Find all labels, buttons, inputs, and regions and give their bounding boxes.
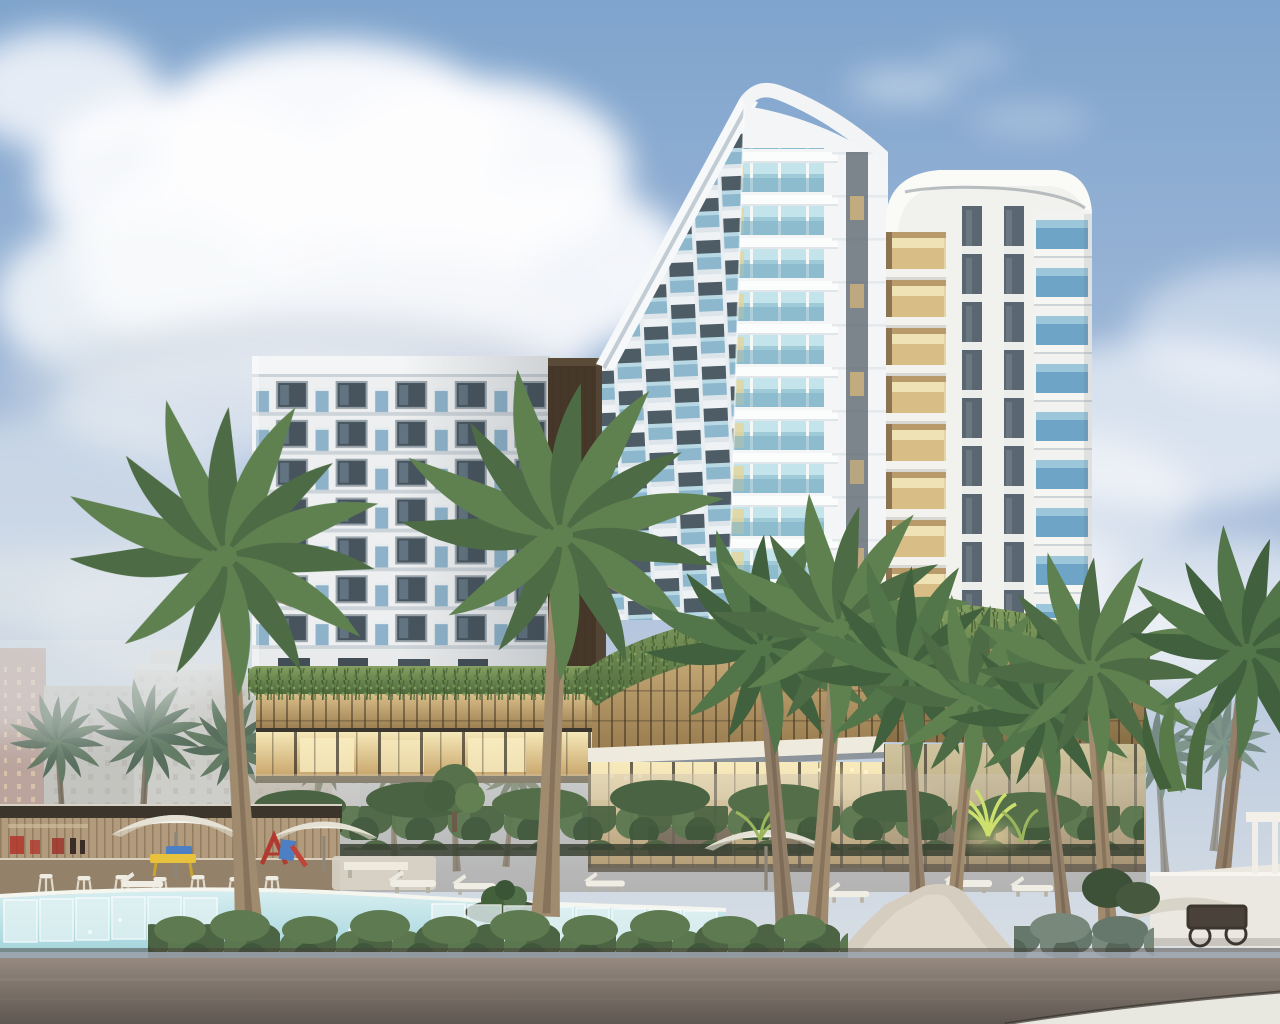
rendering-canvas: Dusk rendering of a modern tropical reso… (0, 0, 1280, 1024)
bench (344, 862, 408, 870)
right-tower-window-strip (962, 206, 982, 616)
right-tower-blue-balconies (1034, 210, 1092, 618)
pergola-post (1272, 820, 1278, 874)
right-tower-warm-balconies (886, 232, 950, 618)
kids-table (150, 854, 196, 863)
right-tower (886, 170, 1092, 620)
planter-wall (246, 844, 1144, 856)
pergola-roof (1246, 812, 1280, 822)
right-tower-window-strip (1004, 206, 1024, 616)
pergola-post (1252, 820, 1258, 874)
bar-red-accent (10, 836, 24, 854)
street (0, 948, 1280, 1024)
